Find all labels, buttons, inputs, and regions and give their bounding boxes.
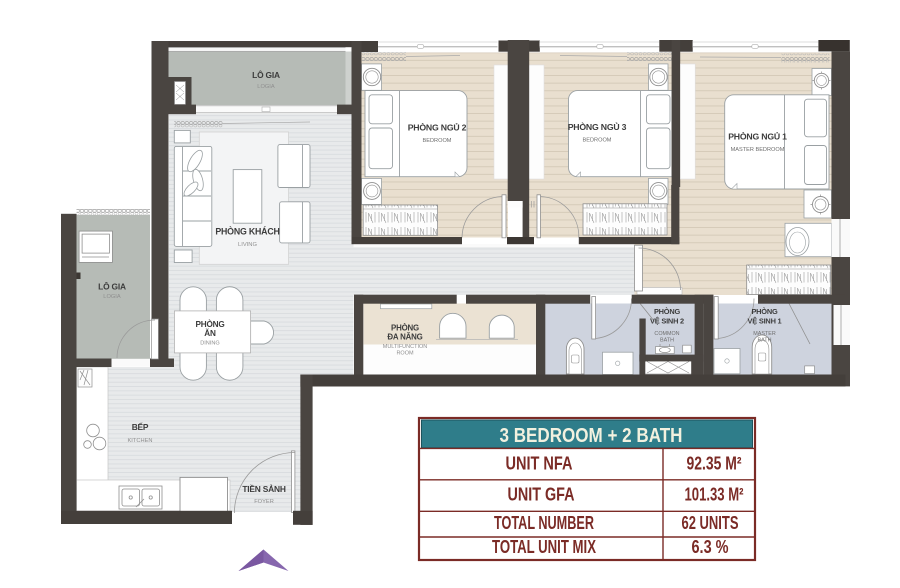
svg-text:101.33 M²: 101.33 M² <box>685 485 744 505</box>
svg-text:BEDROOM: BEDROOM <box>583 138 612 144</box>
svg-text:PHÒNG NGỦ 3: PHÒNG NGỦ 3 <box>568 121 627 132</box>
svg-text:VỆ SINH 2: VỆ SINH 2 <box>650 317 684 326</box>
svg-text:PHÒNG KHÁCH: PHÒNG KHÁCH <box>215 226 279 237</box>
svg-text:MASTER: MASTER <box>753 331 776 337</box>
svg-text:PHÒNG NGỦ 2: PHÒNG NGỦ 2 <box>408 122 467 133</box>
svg-text:BATH: BATH <box>660 338 674 344</box>
svg-text:PHÒNG: PHÒNG <box>654 307 681 316</box>
svg-text:UNIT GFA: UNIT GFA <box>508 485 575 505</box>
svg-text:TIỀN SẢNH: TIỀN SẢNH <box>242 483 285 494</box>
svg-text:PHÒNG: PHÒNG <box>751 307 778 316</box>
svg-text:PHÒNG NGỦ 1: PHÒNG NGỦ 1 <box>728 131 787 142</box>
svg-text:TOTAL NUMBER: TOTAL NUMBER <box>494 513 594 533</box>
svg-text:LÔ GIA: LÔ GIA <box>252 69 280 80</box>
svg-text:LOGIA: LOGIA <box>257 84 275 90</box>
svg-text:DINING: DINING <box>200 341 220 347</box>
svg-text:6.3 %: 6.3 % <box>692 537 729 557</box>
svg-text:FOYER: FOYER <box>254 499 274 505</box>
svg-text:BEDROOM: BEDROOM <box>423 138 452 144</box>
svg-text:COMMON: COMMON <box>654 331 679 337</box>
svg-text:MASTER BEDROOM: MASTER BEDROOM <box>731 147 785 153</box>
svg-text:ĐA NĂNG: ĐA NĂNG <box>387 333 422 342</box>
svg-text:92.35 M²: 92.35 M² <box>687 454 742 474</box>
svg-text:UNIT NFA: UNIT NFA <box>506 454 573 474</box>
svg-text:LIVING: LIVING <box>238 242 257 248</box>
svg-text:VỆ SINH 1: VỆ SINH 1 <box>748 317 782 326</box>
svg-text:TOTAL UNIT MIX: TOTAL UNIT MIX <box>492 537 596 557</box>
svg-text:PHÒNG: PHÒNG <box>195 318 224 329</box>
svg-text:PHÒNG: PHÒNG <box>391 324 419 333</box>
svg-text:KITCHEN: KITCHEN <box>128 438 153 444</box>
svg-text:BẾP: BẾP <box>132 422 149 432</box>
svg-text:3 BEDROOM + 2 BATH: 3 BEDROOM + 2 BATH <box>500 424 683 447</box>
svg-text:LOGIA: LOGIA <box>103 294 121 300</box>
svg-text:62 UNITS: 62 UNITS <box>682 513 739 533</box>
svg-text:BATH: BATH <box>758 338 772 344</box>
svg-text:ĂN: ĂN <box>204 328 216 338</box>
svg-text:ROOM: ROOM <box>396 351 414 357</box>
svg-text:LÔ GIA: LÔ GIA <box>98 281 126 292</box>
svg-text:MULTIFUNCTION: MULTIFUNCTION <box>383 344 428 350</box>
